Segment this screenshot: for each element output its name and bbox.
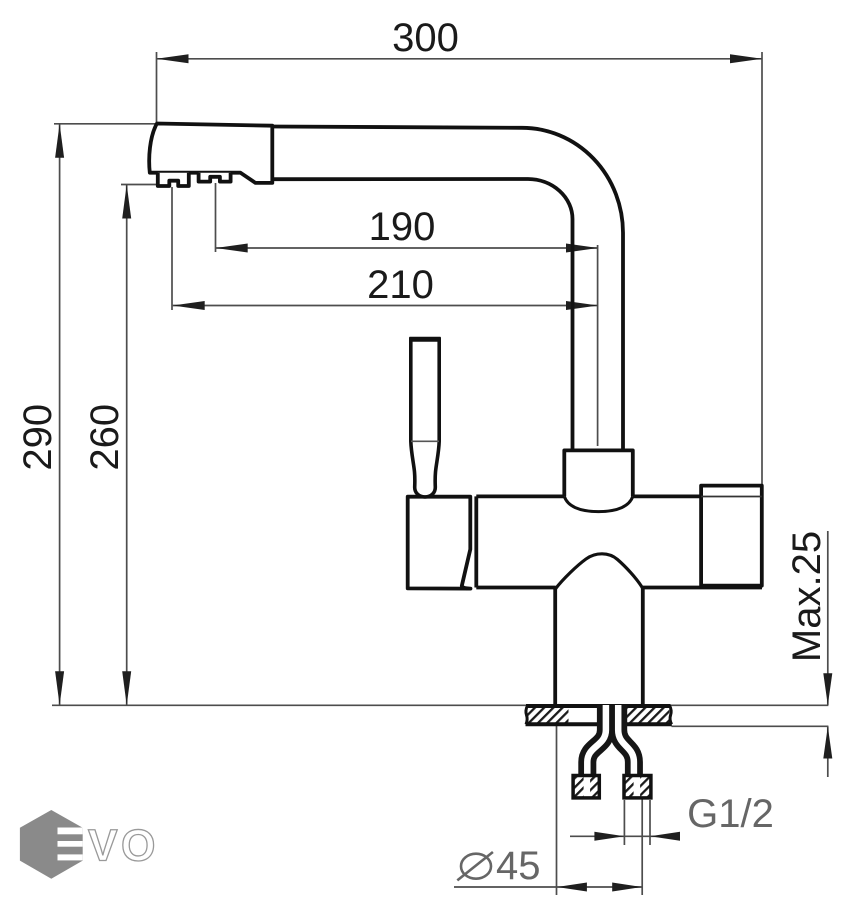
svg-text:VO: VO <box>88 822 159 871</box>
svg-text:260: 260 <box>83 404 127 471</box>
svg-text:190: 190 <box>369 205 436 249</box>
svg-text:300: 300 <box>392 16 459 60</box>
svg-text:210: 210 <box>367 263 434 307</box>
svg-text:290: 290 <box>16 404 60 471</box>
svg-text:G1/2: G1/2 <box>687 792 774 836</box>
svg-text:Max.25: Max.25 <box>785 531 829 662</box>
svg-text:45: 45 <box>496 844 541 888</box>
